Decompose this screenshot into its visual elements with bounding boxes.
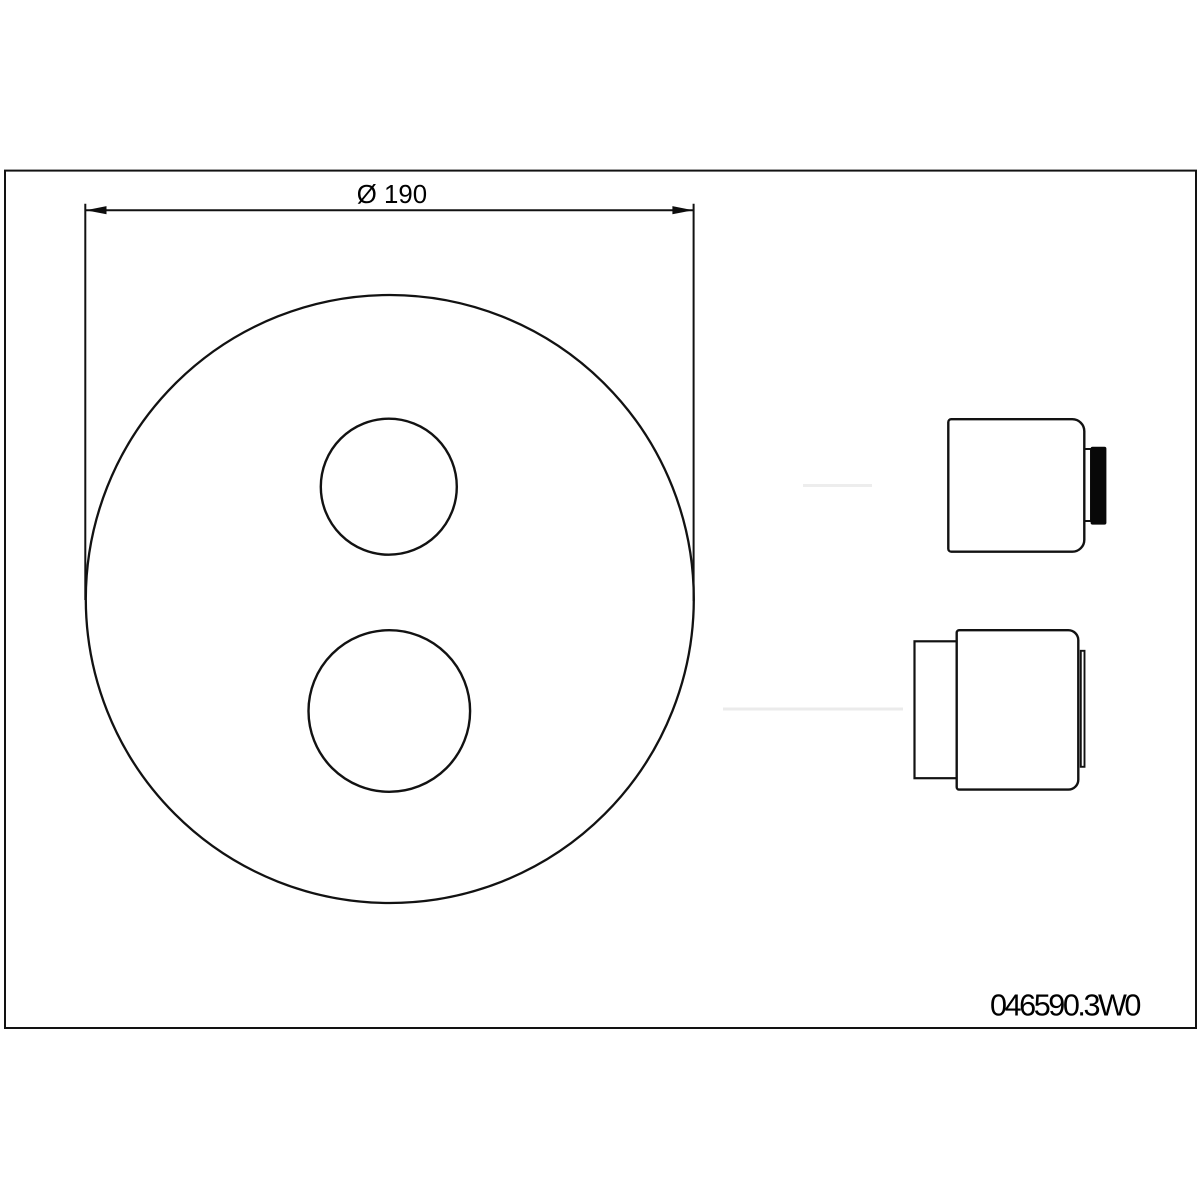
- svg-text:Ø 190: Ø 190: [357, 181, 427, 209]
- svg-text:046590.3W0: 046590.3W0: [990, 989, 1140, 1023]
